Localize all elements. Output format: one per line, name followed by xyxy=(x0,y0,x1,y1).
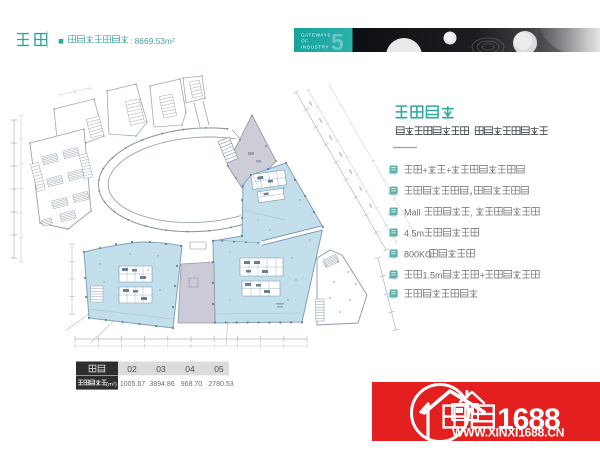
svg-text:968.70: 968.70 xyxy=(181,381,203,388)
svg-text:Mall: Mall xyxy=(404,208,421,218)
svg-text:: 8669.53m²: : 8669.53m² xyxy=(130,36,175,46)
svg-text:02: 02 xyxy=(127,364,137,374)
svg-text:2780.53: 2780.53 xyxy=(208,381,233,388)
svg-text:，: ， xyxy=(469,187,478,197)
svg-text:4.5m: 4.5m xyxy=(404,229,424,239)
svg-text:OF: OF xyxy=(301,39,309,44)
svg-text:800KG: 800KG xyxy=(404,250,432,260)
svg-text:+: + xyxy=(480,271,485,281)
svg-text:+: + xyxy=(446,166,451,176)
svg-text:WWW.XINXI1688.CN: WWW.XINXI1688.CN xyxy=(452,426,564,440)
svg-text:5: 5 xyxy=(331,29,344,55)
svg-text:GATEWAYS: GATEWAYS xyxy=(301,33,331,38)
svg-text:(m²): (m²) xyxy=(106,382,117,388)
svg-text:05: 05 xyxy=(214,364,224,374)
svg-text:+: + xyxy=(423,166,428,176)
svg-text:,: , xyxy=(470,208,473,218)
svg-text:04: 04 xyxy=(185,364,195,374)
svg-text:3894.86: 3894.86 xyxy=(149,381,174,388)
svg-text:INDUSTRY: INDUSTRY xyxy=(301,45,329,50)
svg-text:03: 03 xyxy=(156,364,166,374)
svg-text:1.5m: 1.5m xyxy=(423,271,443,281)
svg-text:1005.67: 1005.67 xyxy=(120,381,145,388)
